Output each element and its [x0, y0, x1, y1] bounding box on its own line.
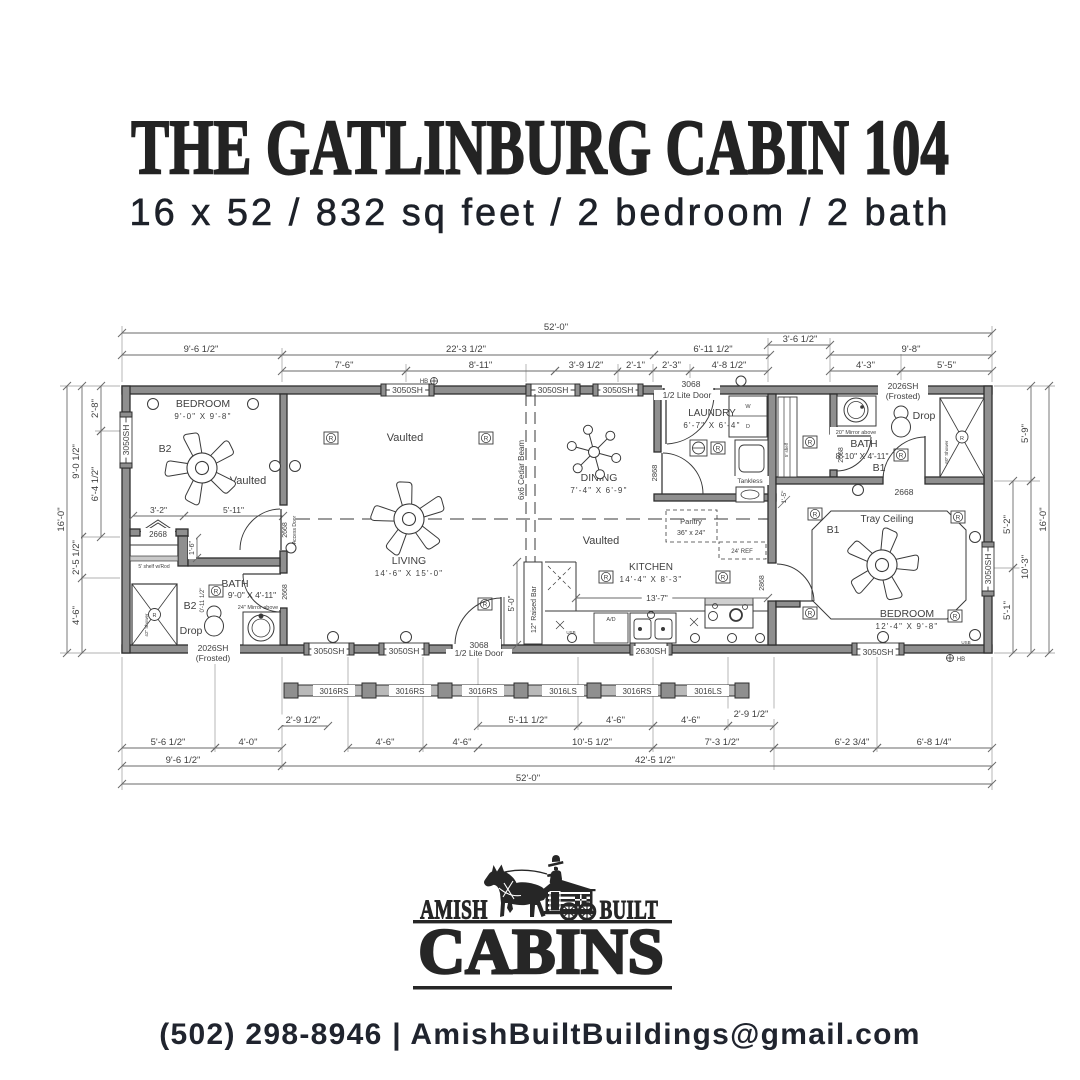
svg-text:36" x 24": 36" x 24" [677, 530, 705, 537]
svg-text:3016LS: 3016LS [694, 687, 722, 696]
svg-text:1/2 Lite Door: 1/2 Lite Door [455, 648, 504, 658]
svg-text:3050SH: 3050SH [121, 425, 131, 456]
svg-text:2668: 2668 [838, 447, 845, 463]
svg-text:4'-8 1/2": 4'-8 1/2" [712, 360, 747, 371]
svg-text:2'-5 1/2": 2'-5 1/2" [71, 540, 82, 575]
svg-text:12'-4" X 9'-8": 12'-4" X 9'-8" [876, 622, 939, 631]
svg-text:7'-4" X 6'-9": 7'-4" X 6'-9" [570, 486, 627, 495]
svg-text:14'-6" X 15'-0": 14'-6" X 15'-0" [375, 569, 444, 578]
svg-text:Vaulted: Vaulted [583, 535, 620, 547]
svg-text:R: R [604, 575, 609, 582]
svg-text:3'-6 1/2": 3'-6 1/2" [783, 334, 818, 345]
svg-text:2'-8": 2'-8" [90, 399, 101, 418]
svg-text:2026SH: 2026SH [198, 643, 229, 653]
svg-text:2630SH: 2630SH [636, 646, 667, 656]
svg-text:8'-11": 8'-11" [469, 360, 493, 371]
svg-text:3016RS: 3016RS [623, 687, 652, 696]
svg-text:5'-11 1/2": 5'-11 1/2" [508, 715, 547, 726]
svg-text:52'-0": 52'-0" [544, 322, 568, 333]
svg-text:4'-6": 4'-6" [606, 715, 625, 726]
svg-text:3050SH: 3050SH [983, 554, 993, 585]
svg-text:3016RS: 3016RS [396, 687, 425, 696]
svg-text:Drop: Drop [913, 410, 936, 422]
svg-text:9'-6 1/2": 9'-6 1/2" [184, 344, 219, 355]
svg-text:R: R [153, 613, 157, 619]
svg-text:R: R [716, 446, 721, 453]
svg-text:(Frosted): (Frosted) [196, 653, 231, 663]
svg-text:5'-2": 5'-2" [1002, 515, 1013, 534]
svg-text:CABINS: CABINS [418, 916, 664, 988]
svg-text:4'-6": 4'-6" [376, 737, 395, 748]
svg-text:2026SH: 2026SH [888, 381, 919, 391]
svg-text:20" Mirror above: 20" Mirror above [836, 430, 876, 436]
svg-text:9'-6 1/2": 9'-6 1/2" [166, 755, 201, 766]
svg-text:2668: 2668 [282, 522, 289, 538]
svg-text:R: R [808, 611, 813, 618]
svg-text:4'-6": 4'-6" [453, 737, 472, 748]
svg-text:10'-5 1/2": 10'-5 1/2" [572, 737, 612, 748]
svg-text:6'-7" X 6'-4": 6'-7" X 6'-4" [683, 421, 740, 430]
svg-text:7'-6": 7'-6" [335, 360, 354, 371]
svg-text:B1: B1 [827, 524, 840, 536]
svg-text:2'-9 1/2": 2'-9 1/2" [734, 709, 769, 720]
svg-text:R: R [214, 589, 219, 596]
svg-text:5'-0": 5'-0" [507, 595, 516, 611]
svg-text:A/D: A/D [606, 617, 615, 623]
svg-text:3050SH: 3050SH [392, 385, 423, 395]
svg-text:1'-6": 1'-6" [189, 541, 196, 555]
svg-text:3050SH: 3050SH [538, 385, 569, 395]
svg-text:Access Door: Access Door [292, 515, 298, 544]
svg-text:3'-2": 3'-2" [150, 505, 167, 515]
svg-text:12" Raised Bar: 12" Raised Bar [531, 585, 538, 633]
svg-text:3050SH: 3050SH [863, 647, 894, 657]
svg-text:5'-1": 5'-1" [1002, 601, 1013, 620]
svg-text:16'-0": 16'-0" [56, 507, 67, 531]
svg-text:3050SH: 3050SH [314, 646, 345, 656]
svg-text:5' shelf: 5' shelf [784, 442, 789, 457]
svg-text:5'-11": 5'-11" [223, 505, 244, 515]
svg-text:4'-0": 4'-0" [239, 737, 258, 748]
svg-text:10'-3": 10'-3" [1020, 555, 1031, 579]
svg-text:R: R [956, 515, 961, 522]
svg-text:BEDROOM: BEDROOM [176, 398, 230, 410]
svg-text:24" Mirror above: 24" Mirror above [238, 605, 278, 611]
svg-text:3016RS: 3016RS [320, 687, 349, 696]
svg-text:R: R [329, 436, 334, 443]
svg-text:2'-1": 2'-1" [626, 360, 645, 371]
svg-text:R: R [484, 436, 489, 443]
svg-text:60" Shower: 60" Shower [944, 440, 949, 464]
svg-text:BATH: BATH [850, 438, 877, 450]
svg-text:R: R [953, 614, 958, 621]
svg-text:2668: 2668 [282, 584, 289, 600]
svg-text:R: R [808, 440, 813, 447]
svg-text:LIVING: LIVING [392, 555, 426, 567]
svg-text:Tray Ceiling: Tray Ceiling [861, 514, 914, 525]
svg-text:2868: 2868 [759, 575, 766, 591]
svg-text:6'-8 1/4": 6'-8 1/4" [917, 737, 952, 748]
svg-text:HB: HB [420, 379, 428, 385]
svg-text:5'-5": 5'-5" [937, 360, 956, 371]
svg-text:B2: B2 [159, 443, 172, 455]
svg-text:Drop: Drop [180, 625, 203, 637]
svg-text:0'-11 1/2": 0'-11 1/2" [200, 588, 206, 613]
svg-text:2868: 2868 [650, 465, 659, 482]
svg-text:16'-0": 16'-0" [1038, 507, 1049, 531]
svg-text:3'-9 1/2": 3'-9 1/2" [569, 360, 604, 371]
svg-text:9'-0 1/2": 9'-0 1/2" [71, 444, 82, 479]
svg-text:Vaulted: Vaulted [387, 432, 424, 444]
svg-text:3016LS: 3016LS [549, 687, 577, 696]
svg-text:42'-5 1/2": 42'-5 1/2" [635, 755, 675, 766]
svg-text:5'-6 1/2": 5'-6 1/2" [151, 737, 186, 748]
svg-text:6'-11 1/2": 6'-11 1/2" [693, 344, 732, 355]
svg-text:42" Shower: 42" Shower [144, 613, 149, 637]
svg-text:22'-3 1/2": 22'-3 1/2" [446, 344, 486, 355]
svg-text:2'-9 1/2": 2'-9 1/2" [286, 715, 321, 726]
svg-text:R: R [899, 453, 904, 460]
svg-text:9'-0" X 9'-8": 9'-0" X 9'-8" [174, 412, 231, 421]
svg-text:6x6 Cedar Beam: 6x6 Cedar Beam [517, 440, 526, 500]
svg-text:R: R [483, 602, 488, 609]
svg-text:B2: B2 [184, 600, 197, 612]
svg-text:3068: 3068 [682, 379, 701, 389]
svg-text:6'-4 1/2": 6'-4 1/2" [90, 467, 101, 502]
svg-text:3050SH: 3050SH [603, 385, 634, 395]
svg-text:2668: 2668 [895, 487, 914, 497]
svg-text:USB: USB [961, 640, 970, 645]
svg-text:4'-6": 4'-6" [71, 606, 82, 625]
svg-text:KITCHEN: KITCHEN [629, 562, 673, 573]
svg-text:9'-8": 9'-8" [902, 344, 921, 355]
svg-text:Pantry: Pantry [680, 517, 702, 526]
svg-text:14'-4" X 8'-3": 14'-4" X 8'-3" [620, 575, 683, 584]
svg-text:HB: HB [957, 657, 965, 663]
svg-text:W: W [745, 404, 751, 410]
svg-text:4'-6": 4'-6" [681, 715, 700, 726]
svg-text:5'-9": 5'-9" [1020, 424, 1031, 443]
svg-text:4'-3": 4'-3" [856, 360, 875, 371]
svg-text:1/2 Lite Door: 1/2 Lite Door [663, 390, 712, 400]
svg-text:2668: 2668 [149, 530, 167, 539]
svg-text:6'-2 3/4": 6'-2 3/4" [835, 737, 870, 748]
svg-text:2'-3": 2'-3" [662, 360, 681, 371]
svg-text:R: R [721, 575, 726, 582]
svg-text:R: R [813, 512, 818, 519]
svg-text:13'-7": 13'-7" [646, 593, 668, 603]
svg-text:52'-0": 52'-0" [516, 773, 540, 784]
svg-text:3016RS: 3016RS [469, 687, 498, 696]
svg-text:R: R [960, 436, 964, 442]
svg-text:BEDROOM: BEDROOM [880, 608, 934, 620]
svg-text:24' REF: 24' REF [731, 549, 753, 555]
svg-text:5' shelf w/Rod: 5' shelf w/Rod [138, 564, 169, 570]
svg-text:USB: USB [566, 630, 575, 635]
svg-text:3050SH: 3050SH [389, 646, 420, 656]
svg-text:(Frosted): (Frosted) [886, 391, 921, 401]
svg-text:Tankless: Tankless [737, 478, 763, 485]
svg-text:7'-3 1/2": 7'-3 1/2" [705, 737, 740, 748]
svg-text:D: D [746, 424, 750, 430]
